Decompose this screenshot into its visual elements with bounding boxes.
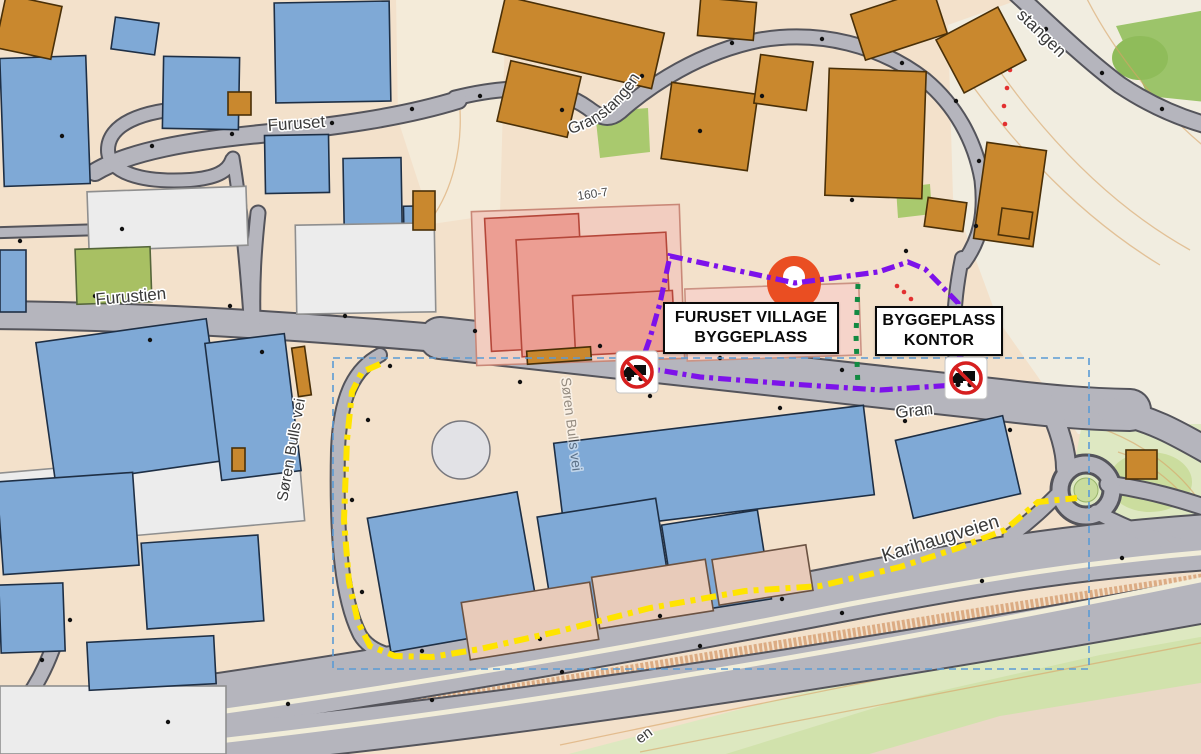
boundary-dot — [388, 364, 392, 368]
boundary-dot — [780, 597, 784, 601]
building-orange — [697, 0, 756, 40]
construction-site-label: FURUSET VILLAGE BYGGEPLASS — [663, 302, 839, 354]
boundary-dot — [343, 314, 347, 318]
no-trucks-icon[interactable] — [945, 357, 987, 399]
boundary-dot — [148, 338, 152, 342]
boundary-dot — [473, 329, 477, 333]
boundary-dot — [698, 129, 702, 133]
construction-site-label-line2: BYGGEPLASS — [694, 328, 807, 348]
boundary-dot — [698, 644, 702, 648]
trail-dot — [1005, 86, 1010, 91]
building-orange — [851, 0, 948, 60]
building-orange — [0, 0, 62, 59]
boundary-dot — [60, 134, 64, 138]
building-orange — [754, 55, 813, 111]
building-orange — [661, 82, 758, 170]
boundary-dot — [560, 108, 564, 112]
building-blue — [87, 636, 216, 691]
boundary-dot — [166, 720, 170, 724]
building-blue — [0, 250, 26, 312]
boundary-dot — [820, 37, 824, 41]
boundary-dot — [366, 418, 370, 422]
boundary-dot — [18, 239, 22, 243]
building-orange — [924, 197, 967, 231]
trail-dot — [902, 290, 907, 295]
building-orange — [292, 346, 312, 396]
boundary-dot — [1100, 71, 1104, 75]
building-orange — [228, 92, 251, 115]
boundary-dot — [410, 107, 414, 111]
boundary-dot — [598, 344, 602, 348]
map-canvas[interactable]: FurusetFurustienGranstangenstangenSøren … — [0, 0, 1201, 754]
boundary-dot — [40, 658, 44, 662]
boundary-dot — [350, 498, 354, 502]
trail-dot — [1002, 104, 1007, 109]
building-blue — [111, 17, 159, 55]
boundary-dot — [840, 611, 844, 615]
boundary-dot — [286, 702, 290, 706]
boundary-dot — [150, 144, 154, 148]
boundary-dot — [904, 249, 908, 253]
building-blue — [141, 535, 264, 629]
building-white — [0, 686, 226, 754]
boundary-dot — [430, 698, 434, 702]
boundary-dot — [900, 61, 904, 65]
site-office-label-line1: BYGGEPLASS — [882, 311, 995, 331]
building-blue — [0, 472, 139, 574]
boundary-dot — [120, 227, 124, 231]
street-label-plot-number: 160-7 — [576, 185, 609, 203]
boundary-dot — [518, 380, 522, 384]
plaza-circle — [432, 421, 490, 479]
site-office-label: BYGGEPLASS KONTOR — [875, 306, 1003, 356]
building-orange — [413, 191, 435, 230]
trail-dot — [895, 284, 900, 289]
boundary-dot — [760, 94, 764, 98]
boundary-dot — [658, 614, 662, 618]
boundary-dot — [1120, 556, 1124, 560]
building-blue — [895, 416, 1020, 519]
building-blue — [264, 134, 329, 193]
construction-site-label-line1: FURUSET VILLAGE — [675, 308, 827, 328]
boundary-dot — [68, 618, 72, 622]
roundabout-island — [1074, 478, 1098, 502]
street-label-furuset: Furuset — [267, 112, 326, 135]
building-white — [87, 186, 248, 251]
map-svg: FurusetFurustienGranstangenstangenSøren … — [0, 0, 1201, 754]
boundary-dot — [330, 121, 334, 125]
building-blue — [36, 319, 226, 485]
boundary-dot — [730, 41, 734, 45]
building-orange — [232, 448, 245, 471]
boundary-dot — [778, 406, 782, 410]
street-label-gran: Gran — [894, 399, 934, 422]
building-blue — [0, 583, 65, 653]
boundary-dot — [420, 649, 424, 653]
building-orange — [825, 68, 926, 198]
boundary-dot — [560, 670, 564, 674]
building-white — [295, 223, 436, 314]
boundary-dot — [954, 99, 958, 103]
building-blue — [0, 56, 90, 187]
boundary-dot — [228, 304, 232, 308]
building-orange — [1126, 450, 1157, 479]
boundary-dot — [974, 224, 978, 228]
boundary-dot — [850, 198, 854, 202]
building-pink — [572, 290, 675, 355]
trail-dot — [1003, 122, 1008, 127]
boundary-dot — [648, 394, 652, 398]
no-trucks-icon[interactable] — [616, 351, 658, 393]
boundary-dot — [977, 159, 981, 163]
boundary-dot — [230, 132, 234, 136]
boundary-dot — [840, 368, 844, 372]
building-orange — [998, 208, 1032, 239]
boundary-dot — [1008, 428, 1012, 432]
boundary-dot — [1160, 107, 1164, 111]
site-office-label-line2: KONTOR — [904, 331, 974, 351]
building-blue — [274, 1, 391, 103]
boundary-dot — [478, 94, 482, 98]
boundary-dot — [980, 579, 984, 583]
trail-dot — [909, 297, 914, 302]
boundary-dot — [260, 350, 264, 354]
boundary-dot — [360, 590, 364, 594]
